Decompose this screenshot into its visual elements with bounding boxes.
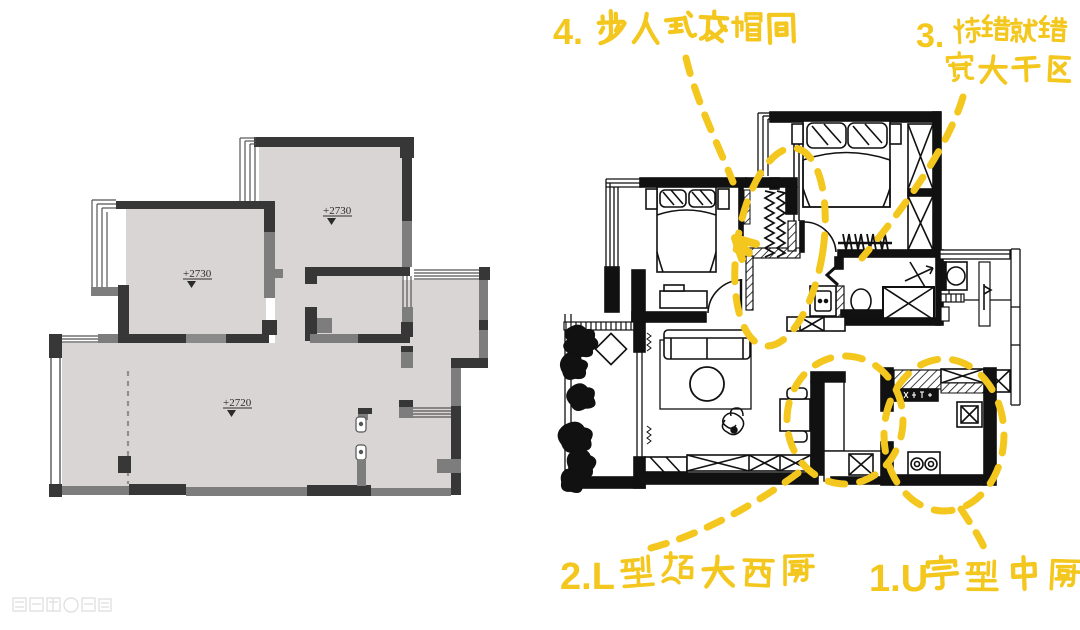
svg-text:4.: 4. (553, 11, 583, 52)
svg-text:1.U: 1.U (869, 558, 928, 600)
svg-text:+2730: +2730 (183, 268, 212, 280)
svg-text:3.: 3. (916, 17, 944, 55)
svg-text:+2730: +2730 (323, 205, 352, 217)
svg-text:+2720: +2720 (223, 397, 252, 409)
svg-text:2.L: 2.L (560, 556, 615, 598)
